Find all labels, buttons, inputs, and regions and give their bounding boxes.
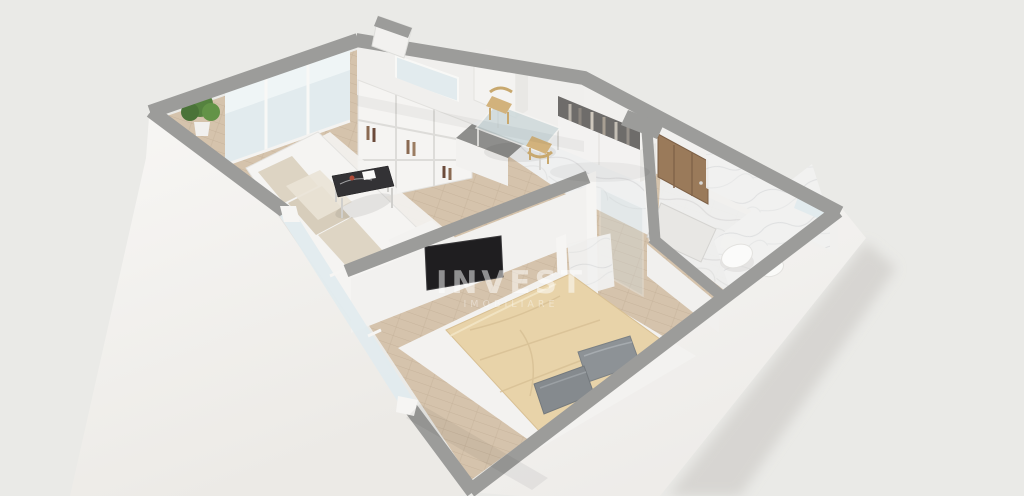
floorplan-scene: INVEST IMOBILIARE xyxy=(0,0,1024,496)
plant-pot xyxy=(194,122,210,136)
entry-door-knob xyxy=(699,181,703,185)
watermark-subtitle: IMOBILIARE xyxy=(464,299,559,310)
floorplan-render: INVEST IMOBILIARE xyxy=(0,0,1024,496)
table-decor-flower xyxy=(350,176,355,181)
watermark-title: INVEST xyxy=(436,265,586,301)
